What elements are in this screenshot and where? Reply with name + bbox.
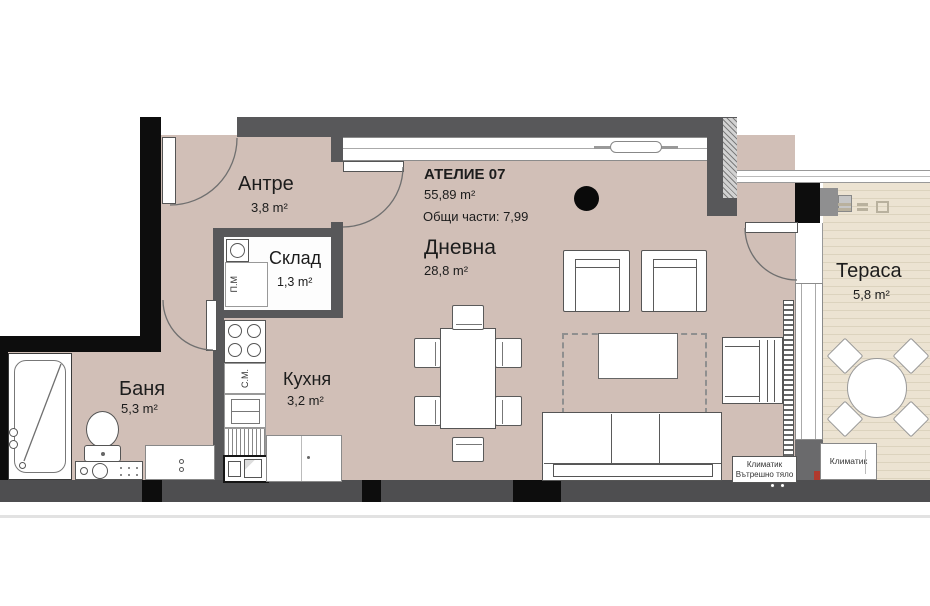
terrace-door-leaf [745, 222, 798, 233]
terrace-drain-dash [838, 203, 851, 206]
sink-bowl-right [244, 459, 262, 478]
unit-title: АТЕЛИЕ 07 [424, 167, 505, 182]
kitchen-counter [266, 435, 342, 482]
living-room-area: 28,8 m² [424, 264, 468, 277]
terrace-drain-square [876, 201, 889, 213]
dining-chair [452, 305, 484, 330]
terrace-round-table [847, 358, 907, 418]
cabinet-knob [179, 459, 184, 464]
entry-name: Антре [238, 174, 294, 194]
armchair [563, 250, 630, 312]
living-room-name: Дневна [424, 237, 496, 258]
dining-table [440, 328, 496, 429]
terrace-corner-column [795, 180, 820, 223]
chair-line [435, 342, 436, 366]
bottom-wall [0, 480, 930, 502]
sofa-cushion-line [611, 414, 612, 464]
boiler-circle [230, 243, 245, 258]
window-casement-handle-icon [610, 141, 662, 153]
dining-chair [495, 396, 522, 426]
vanity-dot [136, 474, 138, 476]
vanity-dot [128, 467, 130, 469]
structural-column [574, 186, 599, 211]
bottom-wall-column-1 [142, 480, 162, 502]
vanity-knob [80, 467, 88, 475]
bottom-wall-column-2 [362, 480, 381, 502]
ac-terrace-unit: Климатик [820, 443, 877, 480]
ac-indoor-label-1: Климатик [733, 461, 796, 469]
terrace-name: Тераса [836, 261, 902, 281]
railing-mid-line [737, 176, 930, 177]
bathtub-faucet-knob [9, 428, 18, 437]
toilet-flush-dot [101, 452, 105, 456]
terrace-area: 5,8 m² [853, 288, 890, 301]
side-armchair-line [774, 340, 775, 402]
terrace-door-threshold [795, 223, 823, 283]
window-frame-line [801, 284, 802, 439]
living-terrace-window [795, 283, 823, 440]
stove [224, 320, 266, 363]
dining-chair [414, 338, 441, 368]
vanity-dot [128, 474, 130, 476]
bathroom-name: Баня [119, 379, 165, 399]
chair-line [456, 324, 482, 325]
party-wall-left [140, 117, 161, 352]
storage-top-wall [213, 228, 331, 237]
dining-chair [452, 437, 484, 462]
side-armchair [722, 337, 783, 404]
vanity-sink [92, 463, 108, 479]
ac-terrace-tick [865, 450, 866, 474]
ac-terrace-label: Климатик [830, 457, 867, 466]
entry-living-wall-stub-top [331, 135, 343, 162]
sink-bowl-left [228, 461, 241, 477]
burner [228, 324, 242, 338]
vanity-dot [120, 467, 122, 469]
cabinet-knob [179, 467, 184, 472]
armchair-back-line [575, 267, 620, 268]
kitchen-area: 3,2 m² [287, 394, 324, 407]
dining-chair [495, 338, 522, 368]
armchair-back-line [575, 259, 620, 260]
storage-kitchen-left-wall [213, 228, 224, 480]
bottom-wall-shadow [0, 515, 930, 518]
entry-living-door-leaf [343, 161, 404, 172]
chair-line [502, 400, 503, 424]
burner [247, 343, 261, 357]
outer-wall-left-thin [0, 352, 8, 482]
bathroom-door-leaf [206, 300, 217, 351]
entrance-door-leaf [162, 137, 176, 204]
ac-indoor-unit: Климатик Вътрешно тяло [732, 456, 797, 483]
side-armchair-line [759, 340, 760, 402]
dishwasher-label: С.М. [241, 369, 250, 388]
armchair-arm-line [575, 259, 576, 311]
terrace-drain-dash [857, 203, 868, 206]
terrace-railing [737, 170, 930, 183]
chair-line [502, 342, 503, 366]
storage-kitchen-divider-wall [213, 310, 343, 318]
floor-plan: П.М С.М. [0, 0, 930, 606]
party-wall-bathroom-top [0, 336, 161, 352]
toilet-tank [84, 445, 121, 462]
armchair [641, 250, 707, 312]
entry-area: 3,8 m² [251, 201, 288, 214]
kitchen-drawer-unit [224, 428, 266, 456]
bathtub-inner [14, 360, 66, 473]
bathroom-vanity [75, 461, 143, 480]
counter-divider [301, 436, 302, 481]
dining-chair [414, 396, 441, 426]
armchair-back-line [653, 267, 697, 268]
sofa-cushion-line [659, 414, 660, 464]
dishwasher: С.М. [224, 363, 266, 394]
window-sash-tick-left [594, 146, 610, 149]
armchair-arm-line [619, 259, 620, 311]
top-wall [237, 117, 737, 137]
window-frame-line [815, 284, 816, 439]
side-armchair-line [725, 346, 759, 347]
chair-line [435, 400, 436, 424]
cabinet-line [231, 411, 260, 412]
bathtub [8, 353, 72, 480]
ac-indoor-label-2: Вътрешно тяло [733, 471, 796, 479]
vanity-dot [120, 474, 122, 476]
terrace-deck [823, 183, 930, 480]
unit-common-parts: Общи части: 7,99 [423, 210, 528, 223]
ac-outdoor-mount [820, 188, 838, 216]
bathroom-area: 5,3 m² [121, 402, 158, 415]
burner [247, 324, 261, 338]
side-armchair-line [725, 396, 759, 397]
ac-indoor-foot [780, 483, 785, 488]
bathroom-cabinet [145, 445, 215, 480]
kitchen-sink [223, 455, 269, 483]
armchair-arm-line [696, 259, 697, 311]
corner-wall-insulation [723, 118, 737, 198]
sofa-front-band [553, 464, 713, 477]
sofa [542, 412, 722, 481]
window-sash-tick-right [660, 146, 678, 149]
terrace-drain-dash [838, 208, 851, 211]
washing-machine-label: П.М [230, 276, 239, 292]
boiler [226, 239, 249, 262]
burner [228, 343, 242, 357]
storage-area: 1,3 m² [277, 276, 312, 289]
bathtub-drain [19, 462, 26, 469]
toilet-bowl [86, 411, 119, 448]
kitchen-name: Кухня [283, 370, 331, 388]
counter-dot [307, 456, 310, 459]
coffee-table [598, 333, 678, 379]
radiator [783, 300, 794, 465]
bottom-wall-column-3 [513, 480, 561, 502]
ac-indoor-foot [770, 483, 775, 488]
bathtub-faucet-knob [9, 440, 18, 449]
side-armchair-line [767, 340, 768, 402]
storage-name: Склад [269, 249, 321, 267]
vanity-dot [136, 467, 138, 469]
terrace-drain-dash [857, 208, 868, 211]
chair-line [456, 444, 482, 445]
entry-living-wall [331, 222, 343, 318]
armchair-arm-line [653, 259, 654, 311]
unit-area: 55,89 m² [424, 188, 475, 201]
washing-machine: П.М [225, 262, 268, 307]
armchair-back-line [653, 259, 697, 260]
kitchen-cabinet [224, 394, 266, 428]
